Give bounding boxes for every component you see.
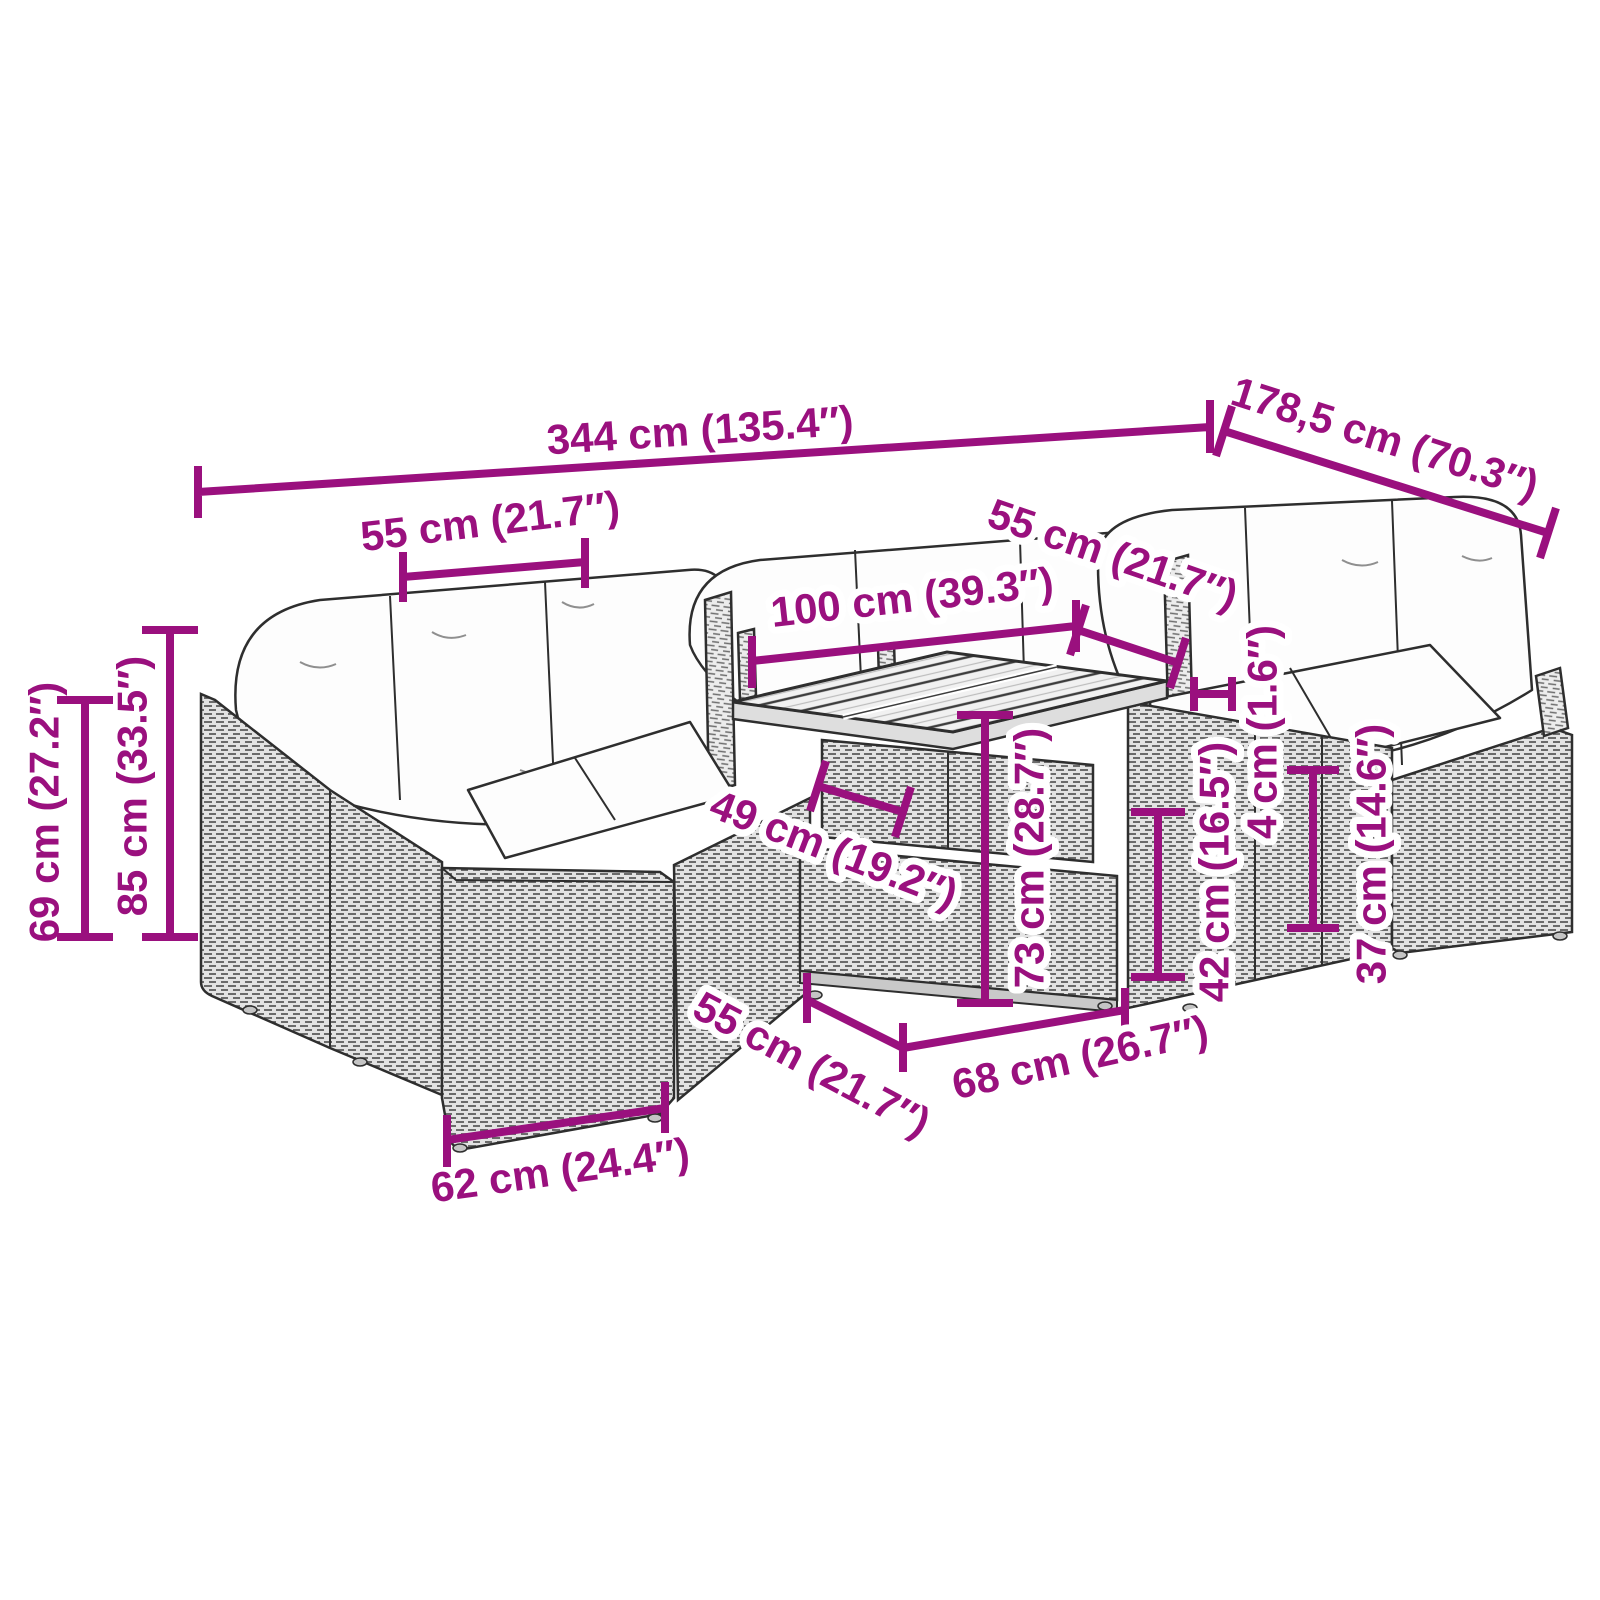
dim-label-height-85: 85 cm (33.5″) (109, 656, 156, 917)
dim-label-overall-depth: 178,5 cm (70.3″) (1226, 367, 1544, 508)
right-rear-post (1536, 668, 1568, 736)
right-armrest-panel (1392, 728, 1572, 953)
dim-label-height-69: 69 cm (27.2″) (21, 682, 68, 943)
dim-height-69: 69 cm (27.2″) (21, 682, 114, 943)
dim-label-seat-height-42: 42 cm (16.5″) (1191, 742, 1238, 1003)
dim-height-85: 85 cm (33.5″) (109, 630, 199, 937)
dim-overall-width-344: 344 cm (135.4″) (198, 397, 1210, 518)
furniture-dimension-diagram: 344 cm (135.4″) 178,5 cm (70.3″) 55 cm (… (0, 0, 1600, 1600)
dim-label-top-thickness-4: 4 cm (1.6″) (1239, 625, 1286, 839)
dim-back-cushion-left-55: 55 cm (21.7″) (358, 482, 622, 602)
dimension-diagram-page: 344 cm (135.4″) 178,5 cm (70.3″) 55 cm (… (0, 0, 1600, 1600)
dim-label-table-height-73: 73 cm (28.7″) (1006, 728, 1053, 989)
front-ottoman (442, 868, 674, 1149)
dim-label-height-37: 37 cm (14.6″) (1348, 724, 1395, 985)
